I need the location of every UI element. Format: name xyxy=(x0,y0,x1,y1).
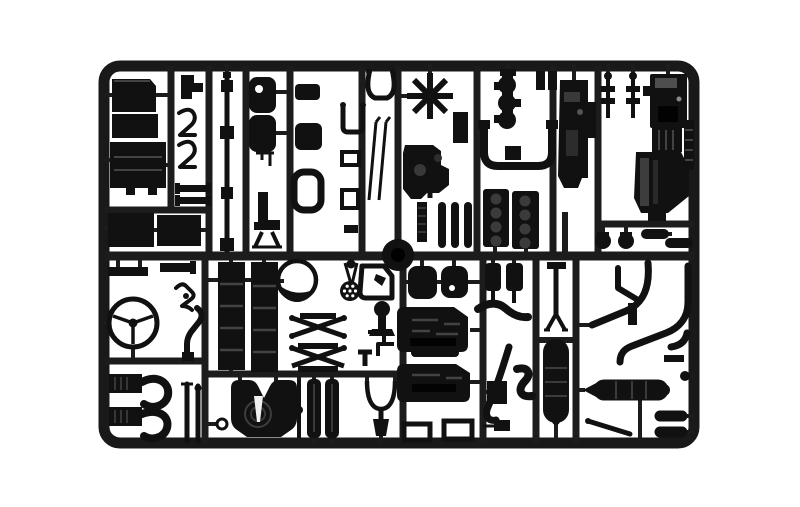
photo-canvas xyxy=(0,0,800,507)
air-tank-b xyxy=(249,115,276,152)
stub-fitting xyxy=(680,371,690,381)
chassis-rail-a xyxy=(218,262,245,370)
cab-panel-a xyxy=(112,79,156,112)
small-tab xyxy=(344,225,358,233)
pulley-b xyxy=(618,232,634,249)
glass-panel-a xyxy=(108,213,154,247)
cab-panel-b xyxy=(112,114,158,138)
mudguard-strip-a xyxy=(295,84,320,100)
small-plate xyxy=(453,112,468,143)
leaf-spring-a xyxy=(307,379,321,438)
floor-panel-upper xyxy=(397,307,468,352)
cross-bar-a xyxy=(411,348,459,357)
vertical-air-tank xyxy=(545,352,567,425)
ribbed-side-bar xyxy=(684,120,694,170)
main-muffler xyxy=(583,381,670,399)
block-small-b xyxy=(548,71,557,90)
cab-floor-step-panel xyxy=(110,142,166,195)
pulley-a xyxy=(595,232,611,249)
comb-bracket xyxy=(417,202,427,242)
engine-bank-a xyxy=(483,189,509,247)
chassis-rail-b xyxy=(251,262,278,372)
leaf-spring-b xyxy=(325,379,339,438)
block-small-a xyxy=(536,71,545,90)
mudguard-strip-b xyxy=(295,123,322,150)
floor-panel-lower xyxy=(397,364,470,402)
junction-box xyxy=(487,381,507,404)
air-tank-a xyxy=(249,77,276,113)
tank-barrel-b xyxy=(441,266,468,298)
glass-panel-b xyxy=(157,215,201,246)
thin-tube-b xyxy=(195,385,202,442)
engine-mid-ribs xyxy=(652,128,682,152)
model-kit-sprue-photo xyxy=(0,0,800,507)
tank-barrel-a xyxy=(408,266,437,299)
engine-bank-b xyxy=(512,191,539,249)
